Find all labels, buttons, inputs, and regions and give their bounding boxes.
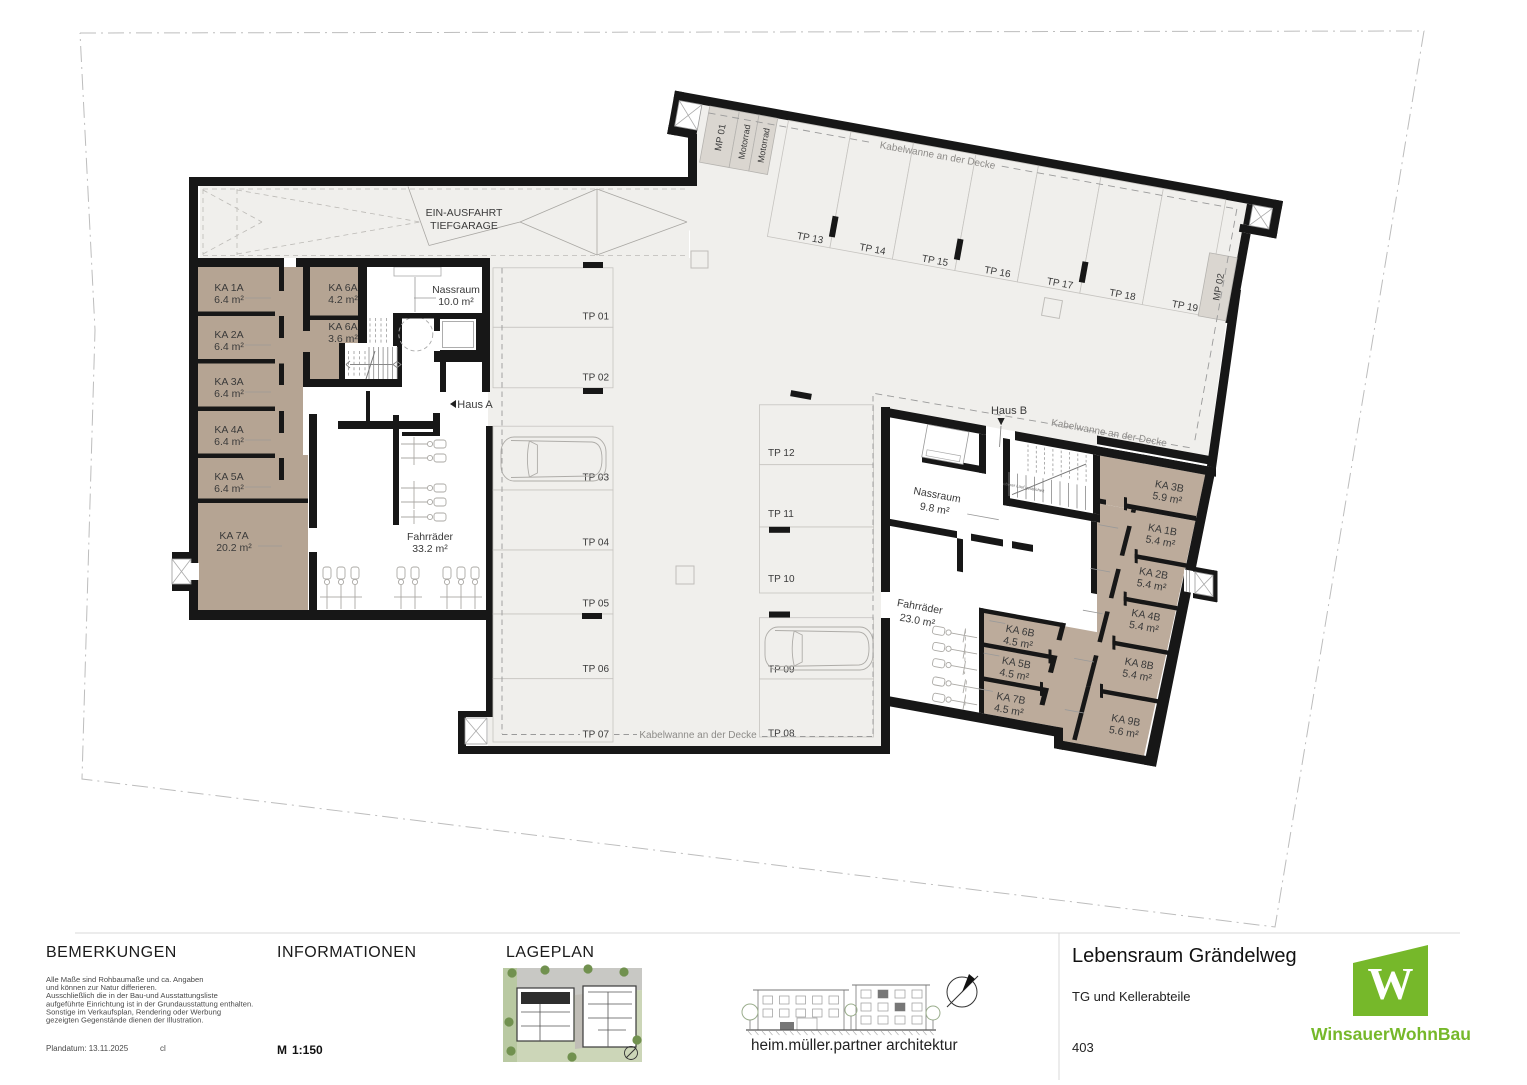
svg-text:cl: cl bbox=[160, 1044, 166, 1053]
svg-text:6.4 m²: 6.4 m² bbox=[214, 294, 244, 306]
svg-text:KA 6A: KA 6A bbox=[328, 321, 357, 333]
svg-text:heim.müller.partner architekt: heim.müller.partner architektur bbox=[751, 1037, 958, 1054]
svg-text:Nassraum: Nassraum bbox=[432, 284, 480, 296]
svg-text:TP 04: TP 04 bbox=[583, 538, 610, 549]
svg-text:TP 01: TP 01 bbox=[583, 312, 610, 323]
svg-text:EIN-AUSFAHRT: EIN-AUSFAHRT bbox=[426, 207, 503, 219]
svg-text:WinsauerWohnBau: WinsauerWohnBau bbox=[1311, 1024, 1471, 1044]
svg-text:6.4 m²: 6.4 m² bbox=[214, 483, 244, 495]
svg-text:M: M bbox=[277, 1043, 287, 1057]
svg-text:4.2 m²: 4.2 m² bbox=[328, 294, 358, 306]
svg-text:KA 1A: KA 1A bbox=[214, 282, 243, 294]
svg-text:Haus A: Haus A bbox=[457, 399, 493, 411]
svg-text:6.4 m²: 6.4 m² bbox=[214, 388, 244, 400]
svg-text:TP 03: TP 03 bbox=[583, 473, 610, 484]
svg-text:W: W bbox=[1368, 958, 1414, 1009]
svg-text:TP 02: TP 02 bbox=[583, 373, 610, 384]
svg-text:Lebensraum Grändelweg: Lebensraum Grändelweg bbox=[1072, 945, 1297, 967]
svg-text:TIEFGARAGE: TIEFGARAGE bbox=[430, 220, 498, 232]
svg-text:403: 403 bbox=[1072, 1040, 1094, 1055]
svg-text:TG und Kellerabteile: TG und Kellerabteile bbox=[1072, 989, 1191, 1004]
svg-text:TP 12: TP 12 bbox=[768, 448, 795, 459]
svg-text:1:150: 1:150 bbox=[292, 1043, 323, 1057]
svg-text:KA 2A: KA 2A bbox=[214, 329, 243, 341]
svg-text:gezeigten Gegenstände dienen d: gezeigten Gegenstände dienen der Illustr… bbox=[46, 1016, 203, 1025]
svg-text:BEMERKUNGEN: BEMERKUNGEN bbox=[46, 944, 177, 961]
svg-text:TP 06: TP 06 bbox=[583, 664, 610, 675]
svg-text:6.4 m²: 6.4 m² bbox=[214, 436, 244, 448]
svg-text:TP 05: TP 05 bbox=[583, 599, 610, 610]
svg-text:KA 7A: KA 7A bbox=[219, 530, 248, 542]
svg-text:Kabelwanne an der Decke: Kabelwanne an der Decke bbox=[639, 730, 757, 741]
svg-text:TP 10: TP 10 bbox=[768, 574, 795, 585]
svg-text:KA 3A: KA 3A bbox=[214, 376, 243, 388]
svg-text:10.0 m²: 10.0 m² bbox=[438, 296, 474, 308]
svg-text:6.4 m²: 6.4 m² bbox=[214, 341, 244, 353]
svg-text:3.6 m²: 3.6 m² bbox=[328, 333, 358, 345]
svg-text:INFORMATIONEN: INFORMATIONEN bbox=[277, 944, 417, 961]
svg-text:KA 4A: KA 4A bbox=[214, 424, 243, 436]
svg-text:KA 6A: KA 6A bbox=[328, 282, 357, 294]
svg-text:TP 08: TP 08 bbox=[768, 729, 795, 740]
svg-text:KA 5A: KA 5A bbox=[214, 471, 243, 483]
svg-text:TP 07: TP 07 bbox=[583, 730, 610, 741]
svg-text:Haus B: Haus B bbox=[991, 405, 1027, 417]
svg-text:LAGEPLAN: LAGEPLAN bbox=[506, 944, 594, 961]
svg-text:Fahrräder: Fahrräder bbox=[407, 531, 454, 543]
svg-text:Plandatum: 13.11.2025: Plandatum: 13.11.2025 bbox=[46, 1044, 129, 1053]
svg-text:20.2 m²: 20.2 m² bbox=[216, 542, 252, 554]
svg-text:33.2 m²: 33.2 m² bbox=[412, 543, 448, 555]
svg-text:TP 11: TP 11 bbox=[768, 509, 794, 520]
